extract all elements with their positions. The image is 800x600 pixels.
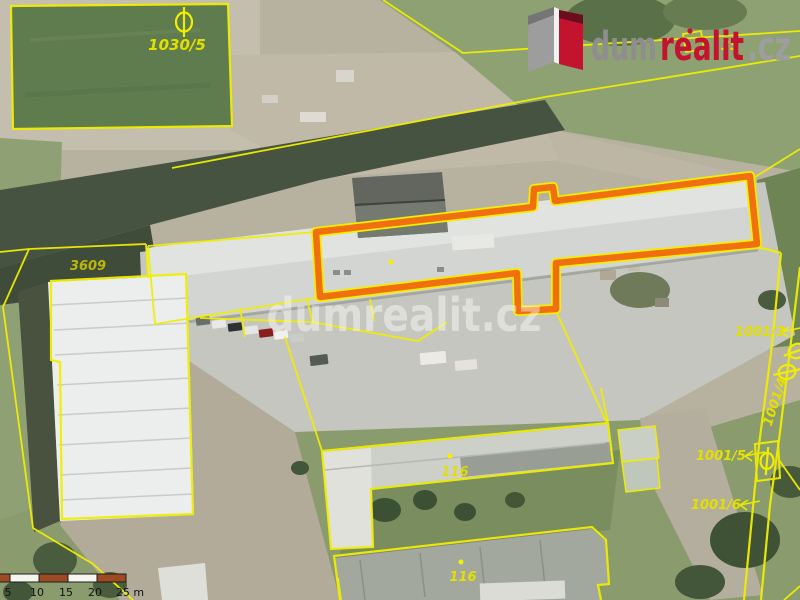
logo-text-realit: realit (660, 24, 744, 70)
building-label-116-a: 116 (441, 465, 468, 480)
parcel-label-1001-6: 1001/6 (691, 498, 741, 513)
logo-text-dum: dum (591, 24, 657, 70)
listing-map-image[interactable]: 1030/5 3609 116 116 1001/3 1001/4 1001/5… (0, 0, 800, 600)
parcel-label-1030-5: 1030/5 (148, 36, 206, 54)
parcel-label-3609: 3609 (70, 259, 106, 274)
parcel-label-1001-3: 1001/3 (735, 325, 785, 340)
logo-text-cz: .cz (747, 24, 791, 70)
aerial-map[interactable]: 1030/5 3609 116 116 1001/3 1001/4 1001/5… (0, 0, 800, 600)
scale-label-25m: 25 m (116, 586, 144, 599)
watermark-text: dumrealit.cz (267, 288, 542, 342)
logo-accent-dot (687, 28, 692, 33)
door-logo-icon (528, 7, 583, 72)
scale-label-5: 5 (5, 586, 12, 599)
parcel-label-1001-5: 1001/5 (696, 449, 746, 464)
scale-label-10: 10 (30, 586, 44, 599)
scale-label-15: 15 (59, 586, 73, 599)
building-label-116-b: 116 (449, 570, 476, 585)
scale-label-20: 20 (88, 586, 102, 599)
pond (11, 4, 232, 129)
